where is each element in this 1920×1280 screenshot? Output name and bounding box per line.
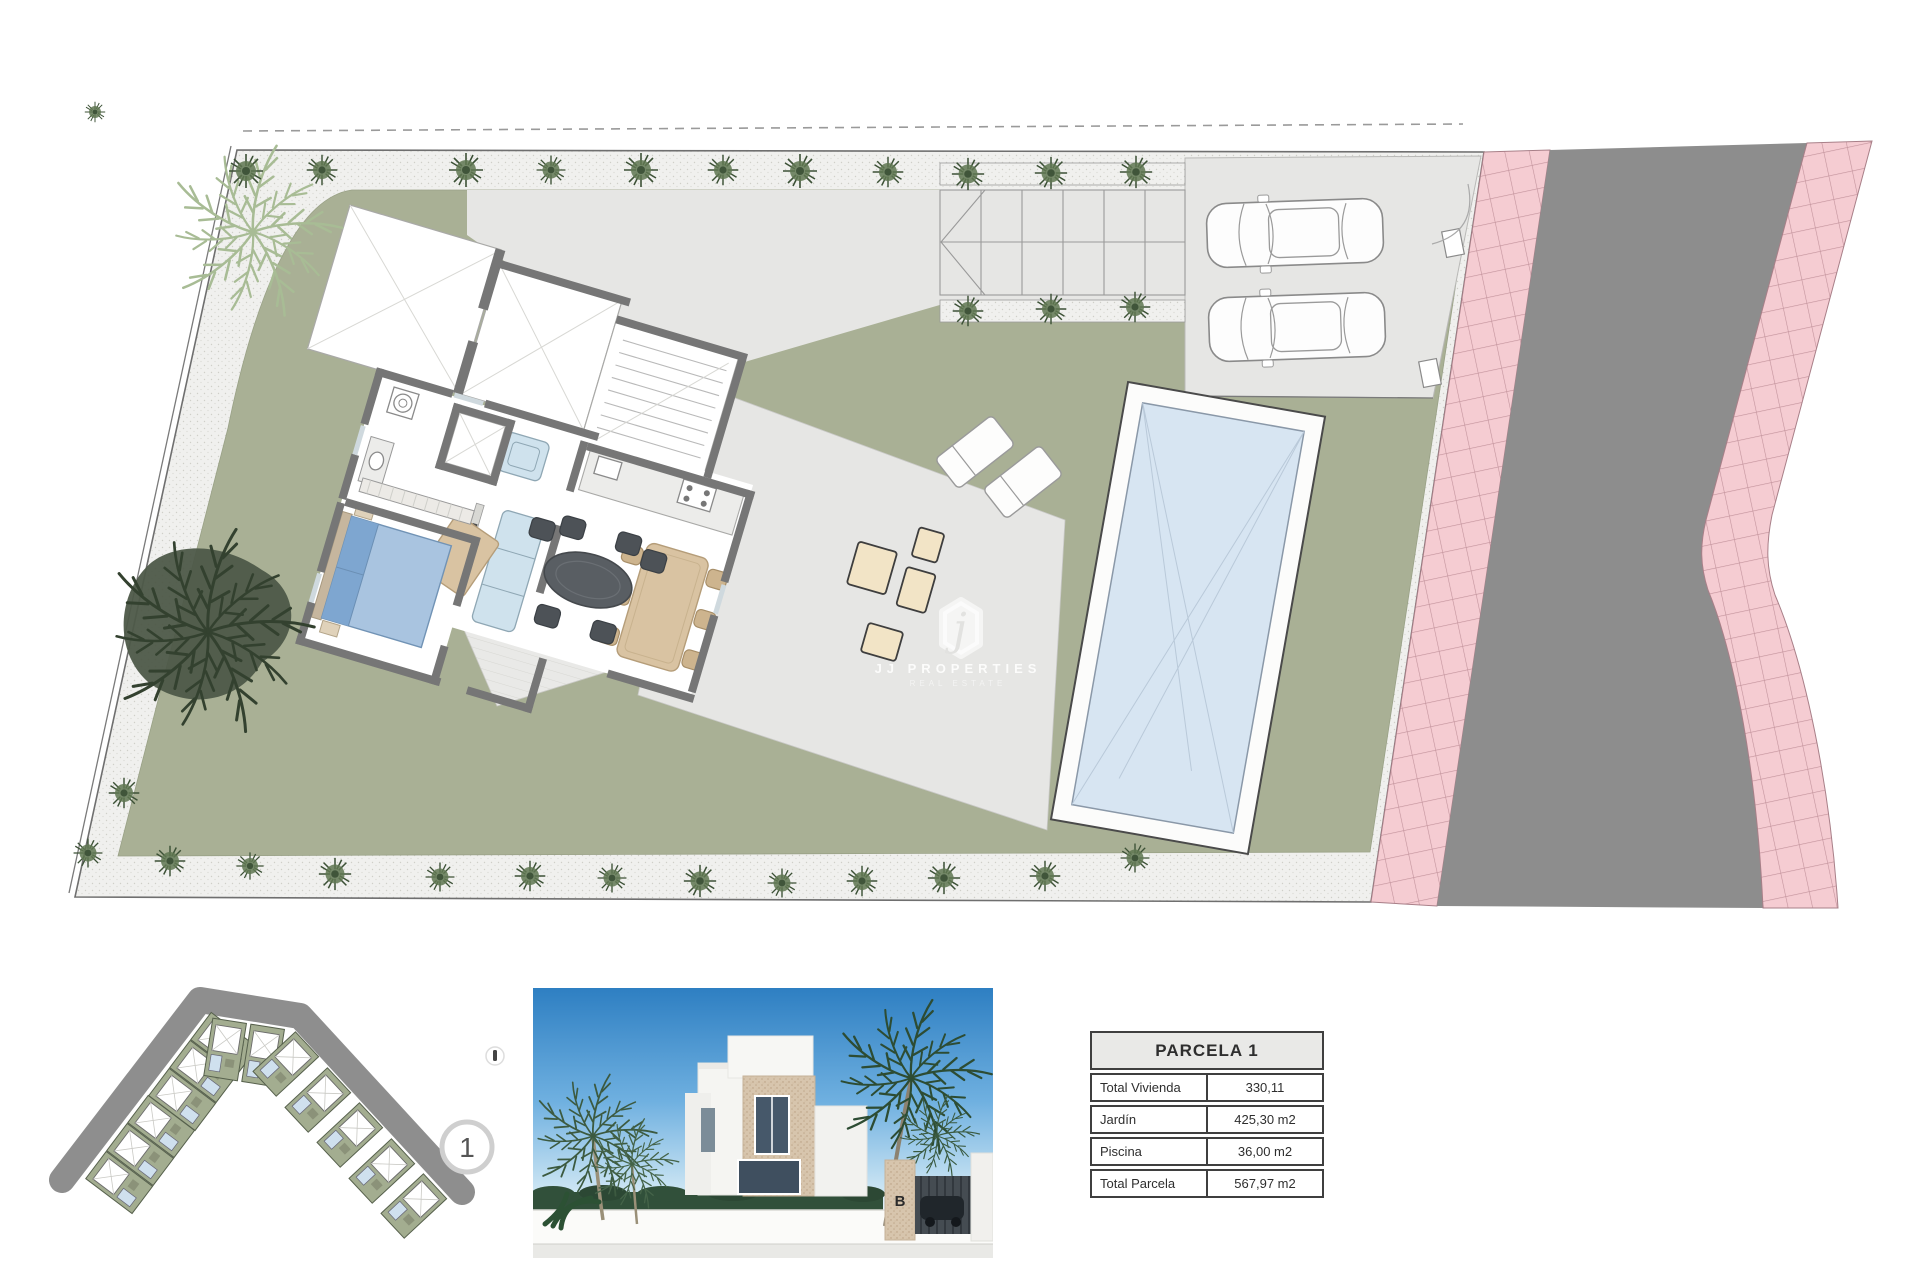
- row-value: 330,11: [1207, 1073, 1324, 1102]
- entrance-gate: [915, 1176, 973, 1234]
- entrance-letter: B: [895, 1193, 906, 1210]
- table-row: Jardín 425,30 m2: [1090, 1105, 1324, 1134]
- villa-photo: B: [533, 988, 993, 1258]
- small-bush-icon: [85, 102, 105, 122]
- villa-building: [685, 1036, 867, 1196]
- street: [533, 1244, 993, 1258]
- location-map: 1: [62, 1000, 504, 1238]
- row-label: Jardín: [1090, 1105, 1207, 1134]
- plot-marker-label: 1: [459, 1132, 475, 1163]
- parcel-table-title: PARCELA 1: [1090, 1031, 1324, 1070]
- watermark-logo: j: [943, 601, 979, 655]
- car-silhouette: [920, 1196, 964, 1220]
- window: [738, 1160, 800, 1194]
- villa-photo-scene: B: [533, 988, 993, 1258]
- row-label: Piscina: [1090, 1137, 1207, 1166]
- row-label: Total Vivienda: [1090, 1073, 1207, 1102]
- table-row: Piscina 36,00 m2: [1090, 1137, 1324, 1166]
- site-plan: [69, 102, 1872, 908]
- table-row: Total Vivienda 330,11: [1090, 1073, 1324, 1102]
- row-value: 425,30 m2: [1207, 1105, 1324, 1134]
- car-icon: [1208, 285, 1387, 369]
- row-value: 567,97 m2: [1207, 1169, 1324, 1198]
- parcel-table: PARCELA 1 Total Vivienda 330,11 Jardín 4…: [1090, 1028, 1324, 1201]
- page-canvas: j 1 JJ PROPERTIES REAL ESTATE: [0, 0, 1920, 1280]
- table-row: Total Parcela 567,97 m2: [1090, 1169, 1324, 1198]
- row-value: 36,00 m2: [1207, 1137, 1324, 1166]
- car-icon: [1206, 191, 1385, 275]
- side-pillar: [971, 1153, 993, 1241]
- window: [701, 1108, 715, 1152]
- map-pin-icon: [486, 1047, 504, 1065]
- row-label: Total Parcela: [1090, 1169, 1207, 1198]
- property-dashed-line: [243, 124, 1463, 131]
